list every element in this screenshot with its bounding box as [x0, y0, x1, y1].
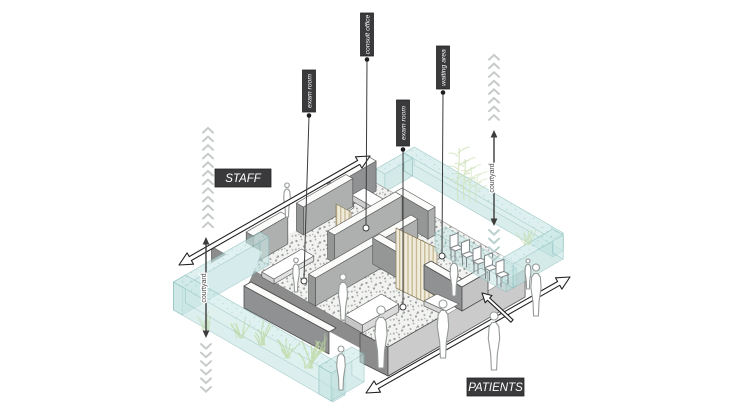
- svg-text:consult office: consult office: [364, 14, 371, 54]
- svg-text:exam room: exam room: [400, 106, 407, 140]
- svg-text:STAFF: STAFF: [225, 173, 262, 185]
- svg-text:courtyard: courtyard: [489, 163, 496, 192]
- svg-text:PATIENTS: PATIENTS: [468, 382, 523, 394]
- svg-text:courtyard: courtyard: [201, 273, 208, 302]
- svg-text:exam room: exam room: [306, 74, 313, 108]
- svg-text:waiting area: waiting area: [440, 49, 447, 86]
